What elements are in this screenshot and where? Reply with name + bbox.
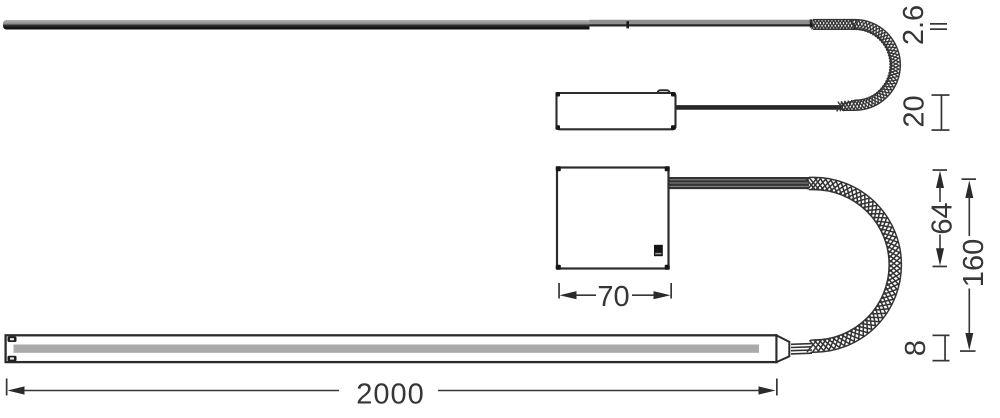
svg-text:2000: 2000 bbox=[356, 379, 425, 411]
svg-text:2.6: 2.6 bbox=[898, 5, 930, 45]
svg-text:160: 160 bbox=[958, 239, 990, 287]
svg-text:8: 8 bbox=[900, 340, 932, 356]
svg-text:20: 20 bbox=[898, 95, 930, 127]
svg-text:64: 64 bbox=[926, 202, 958, 234]
svg-text:70: 70 bbox=[597, 281, 629, 313]
